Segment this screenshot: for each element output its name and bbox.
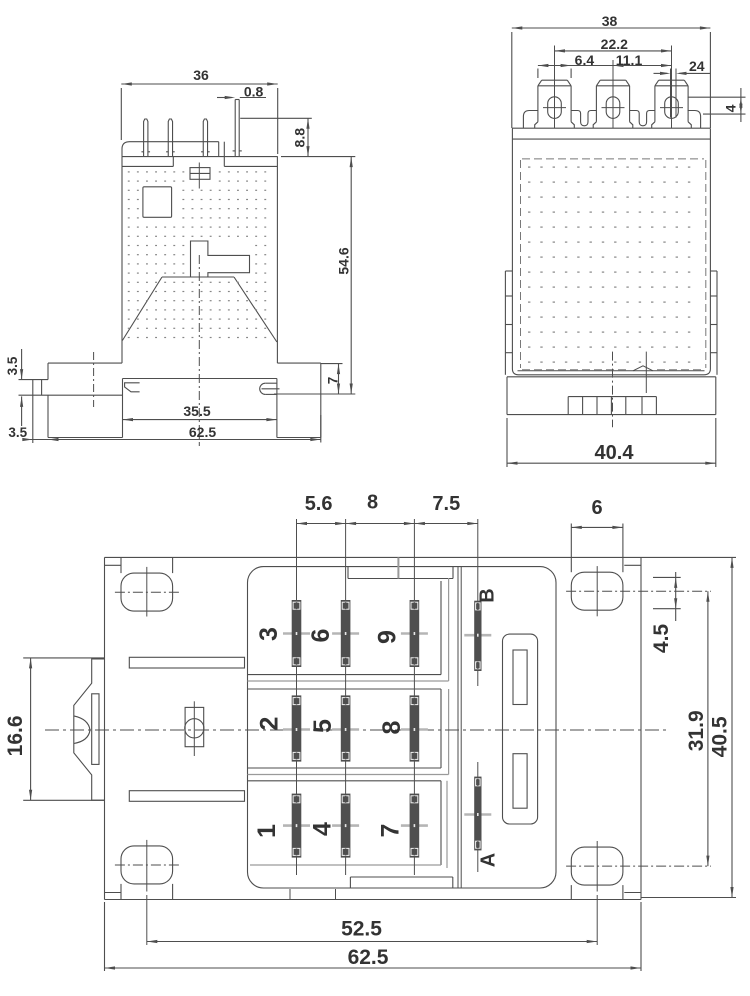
svg-text:6.4: 6.4	[575, 52, 595, 68]
svg-text:2: 2	[256, 717, 284, 731]
svg-text:8: 8	[367, 492, 378, 514]
svg-text:8.8: 8.8	[291, 128, 307, 148]
svg-text:4.5: 4.5	[650, 624, 673, 654]
svg-text:11.1: 11.1	[616, 52, 643, 68]
svg-text:40.4: 40.4	[595, 442, 635, 464]
svg-text:24: 24	[689, 58, 705, 74]
svg-text:6: 6	[307, 629, 335, 643]
svg-text:3: 3	[255, 627, 283, 641]
svg-text:52.5: 52.5	[341, 918, 382, 941]
svg-text:22.2: 22.2	[601, 36, 628, 52]
svg-text:5.6: 5.6	[305, 493, 333, 515]
svg-text:A: A	[478, 853, 500, 867]
svg-text:1: 1	[253, 824, 281, 838]
svg-text:8: 8	[378, 720, 406, 734]
svg-text:7.5: 7.5	[432, 493, 460, 515]
svg-text:36: 36	[193, 67, 209, 83]
svg-text:38: 38	[602, 13, 618, 29]
svg-text:54.6: 54.6	[336, 247, 352, 274]
svg-text:B: B	[477, 588, 499, 602]
svg-text:40.5: 40.5	[708, 716, 731, 757]
svg-text:9: 9	[374, 630, 402, 644]
svg-text:31.9: 31.9	[685, 710, 708, 751]
svg-text:35.5: 35.5	[183, 403, 210, 419]
svg-text:62.5: 62.5	[348, 946, 389, 969]
svg-text:3.5: 3.5	[5, 356, 20, 375]
svg-text:7: 7	[377, 824, 405, 838]
svg-text:3.5: 3.5	[8, 425, 27, 440]
svg-text:16.6: 16.6	[4, 715, 27, 756]
svg-text:5: 5	[309, 719, 337, 733]
svg-text:62.5: 62.5	[189, 424, 216, 440]
svg-text:6: 6	[591, 497, 602, 519]
svg-text:4: 4	[723, 104, 739, 112]
svg-text:4: 4	[309, 822, 337, 836]
